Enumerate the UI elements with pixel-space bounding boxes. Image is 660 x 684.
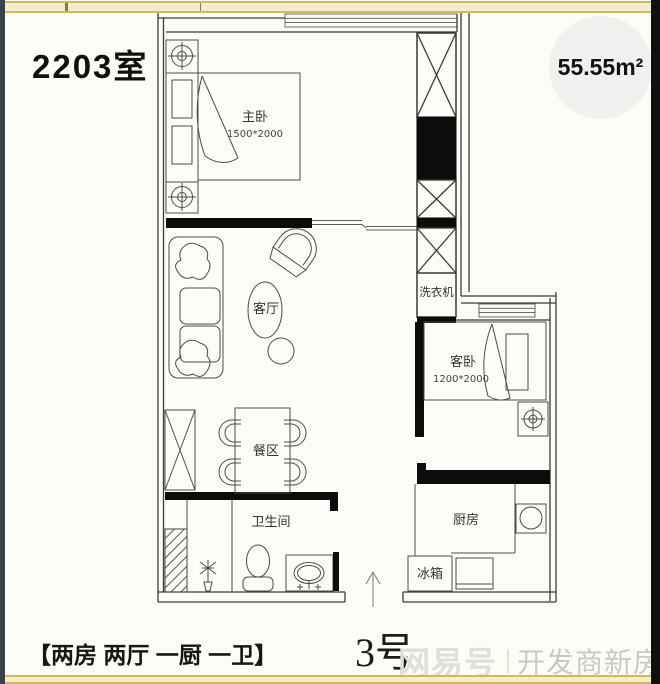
- guest-bedroom-size: 1200*2000: [433, 374, 489, 385]
- pillow: [172, 126, 192, 164]
- entrance-arrow-icon: [366, 572, 380, 607]
- bathroom: 卫生间: [165, 500, 339, 592]
- sink-icon: [286, 555, 333, 591]
- watermark-divider: [507, 649, 509, 673]
- blanket-fold: [202, 76, 238, 158]
- pillow: [172, 80, 192, 118]
- floorplan-drawing: 洗衣机 主卧 1500*2000: [0, 0, 660, 684]
- master-bedroom-size: 1500*2000: [227, 129, 283, 140]
- fridge-icon: [456, 558, 493, 589]
- kitchen-sink-icon: [516, 504, 546, 533]
- bottom-accent-bar: [0, 675, 660, 684]
- chair-icon: [219, 459, 241, 485]
- plant-icon: [200, 560, 216, 591]
- shaft-hatch: [165, 529, 187, 592]
- kitchen-label: 厨房: [453, 512, 479, 528]
- blanket-fold: [492, 324, 510, 398]
- crosshair-icon: [168, 42, 196, 70]
- wall-master-bottom: [166, 218, 312, 228]
- wall-guest-left: [415, 322, 424, 437]
- crosshair-icon: [521, 407, 545, 431]
- area-unit: m²: [615, 54, 643, 81]
- left-edge-strip: [0, 0, 5, 684]
- dining-area-label: 餐区: [253, 443, 279, 459]
- master-bedroom: 主卧 1500*2000: [166, 40, 300, 213]
- layout-summary: 【两房 两厅 一厨 一卫】: [28, 636, 277, 670]
- fridge-label: 冰箱: [417, 566, 443, 582]
- kitchen: 厨房 冰箱: [408, 484, 546, 591]
- crosshair-icon: [168, 183, 196, 211]
- armchair-icon: [267, 221, 324, 279]
- floorplan-page: 2203室 55.55m²: [0, 0, 660, 684]
- headboard: [166, 73, 198, 182]
- side-table-icon: [268, 338, 294, 364]
- sofa-icon: [169, 237, 223, 378]
- master-bedroom-label: 主卧: [242, 110, 268, 125]
- wardrobe-column: 洗衣机: [417, 33, 456, 323]
- toilet-icon: [243, 545, 273, 591]
- guest-bedroom: 客卧 1200*2000: [424, 322, 548, 436]
- unit-number-title: 2203室: [32, 40, 148, 88]
- top-bar-tick: [200, 3, 201, 11]
- wall-kitchen-top: [417, 470, 550, 484]
- washing-machine-label: 洗衣机: [419, 285, 454, 299]
- living-room: 客厅: [169, 221, 324, 378]
- living-room-label: 客厅: [253, 301, 279, 317]
- area-badge: 55.55m²: [549, 16, 652, 119]
- window-guest: [479, 304, 535, 317]
- plant-icon: [176, 243, 210, 279]
- right-edge-strip: [651, 0, 660, 684]
- pillow: [506, 334, 528, 390]
- chair-icon: [284, 459, 306, 485]
- top-accent-bar: [0, 1, 660, 13]
- plan-walls: [158, 11, 556, 602]
- area-value: 55.55: [558, 54, 616, 81]
- bathroom-label: 卫生间: [251, 515, 290, 530]
- top-bar-tick: [65, 3, 68, 11]
- dining-area: 餐区: [165, 408, 306, 493]
- window-master: [285, 14, 457, 27]
- chair-icon: [219, 420, 241, 446]
- guest-bedroom-label: 客卧: [450, 354, 476, 370]
- chair-icon: [284, 420, 306, 446]
- bed-master: [198, 73, 300, 180]
